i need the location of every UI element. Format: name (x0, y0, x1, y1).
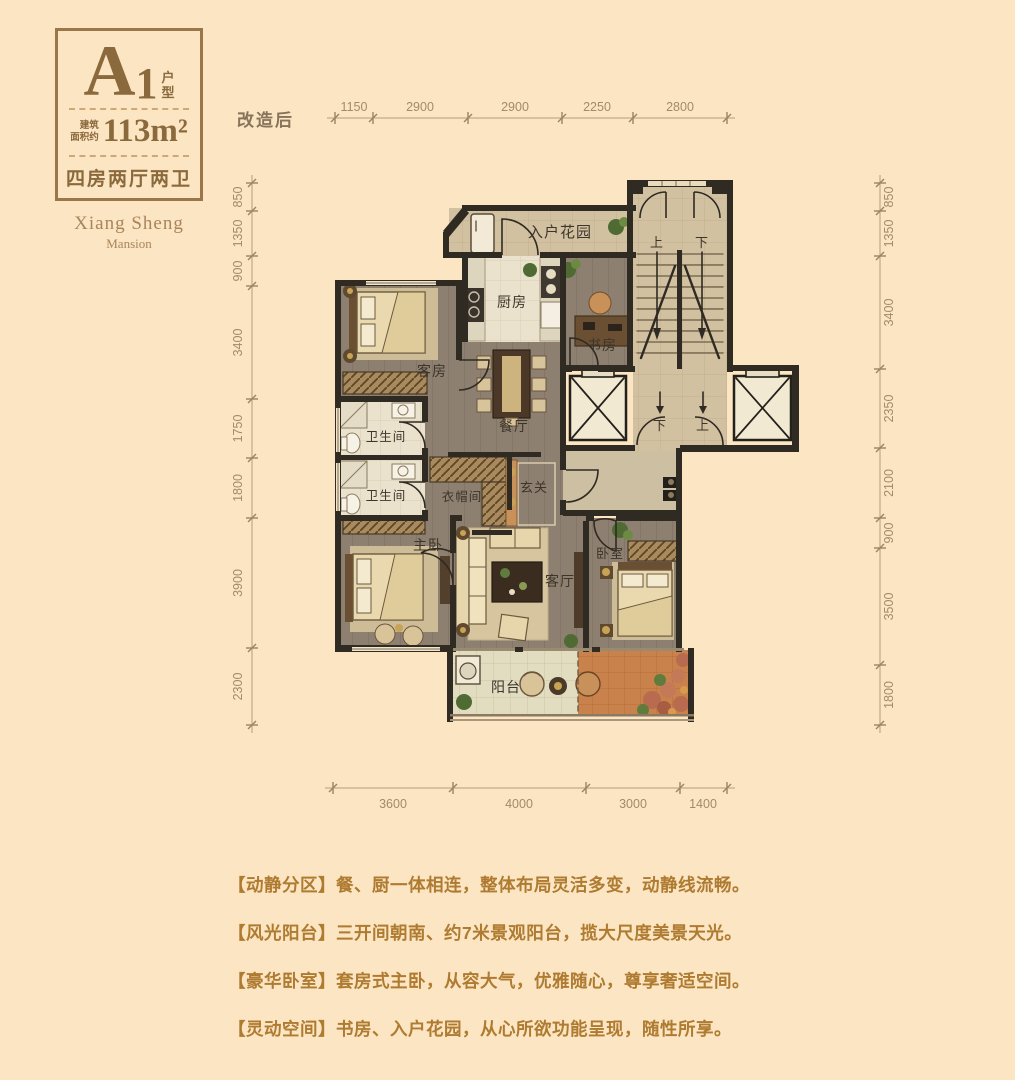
dim-right-6: 3500 (882, 593, 896, 621)
guest-bed-icon (343, 284, 438, 363)
floor-plan-poster: A 1 户 型 建筑 面积约 113m² 四房两厅两卫 Xiang Sheng … (0, 0, 1015, 1080)
dim-left-7: 2300 (231, 673, 245, 701)
dim-top-2: 2900 (501, 100, 529, 114)
room-label-study: 书房 (587, 337, 617, 353)
room-label-living: 客厅 (545, 573, 575, 589)
dim-bottom-3: 1400 (689, 797, 717, 811)
dim-left-2: 900 (231, 261, 245, 282)
dimension-top: 1150 2900 2900 2250 2800 (327, 100, 735, 124)
dim-right-4: 2100 (882, 469, 896, 497)
dim-right-5: 900 (882, 523, 896, 544)
dim-left-0: 850 (231, 187, 245, 208)
plant-icon (523, 263, 537, 277)
room-label-cloak: 衣帽间 (442, 489, 483, 504)
dimension-right: 850 1350 3400 2350 2100 900 3500 1800 (874, 175, 896, 733)
dim-bottom-0: 3600 (379, 797, 407, 811)
dim-left-1: 1350 (231, 220, 245, 248)
dim-left-3: 3400 (231, 329, 245, 357)
dim-top-1: 2900 (406, 100, 434, 114)
dim-right-0: 850 (882, 187, 896, 208)
dim-bottom-1: 4000 (505, 797, 533, 811)
dimension-bottom: 3600 4000 3000 1400 (325, 782, 735, 811)
room-label-bath-upper: 卫生间 (366, 430, 407, 444)
stairs-down-label: 下 (695, 235, 709, 250)
room-label-bath-lower: 卫生间 (366, 489, 407, 503)
feature-line: 【动静分区】餐、厨一体相连，整体布局灵活多变，动静线流畅。 (228, 872, 750, 897)
room-label-entry-garden: 入户花园 (528, 224, 592, 241)
dim-right-3: 2350 (882, 395, 896, 423)
landing-up-label: 上 (696, 418, 710, 433)
room-label-dining: 餐厅 (499, 418, 529, 434)
dim-top-3: 2250 (583, 100, 611, 114)
stairs-up-label: 上 (650, 235, 664, 250)
dim-top-0: 1150 (341, 100, 368, 114)
feature-line: 【灵动空间】书房、入户花园，从心所欲功能呈现，随性所享。 (228, 1016, 750, 1041)
dim-top-4: 2800 (666, 100, 694, 114)
room-label-kitchen: 厨房 (497, 294, 527, 310)
cloak-cabinet-icon (482, 482, 506, 526)
room-label-balcony: 阳台 (491, 679, 521, 695)
dim-left-6: 3900 (231, 569, 245, 597)
wardrobe-icon (343, 372, 427, 394)
plant-icon (564, 634, 578, 648)
feature-line: 【风光阳台】三开间朝南、约7米景观阳台，揽大尺度美景天光。 (228, 920, 750, 945)
room-label-foyer: 玄关 (520, 480, 548, 495)
dim-left-4: 1750 (231, 415, 245, 443)
dim-right-1: 1350 (882, 220, 896, 248)
dim-right-2: 3400 (882, 299, 896, 327)
room-label-master: 主卧 (413, 537, 443, 553)
dimension-left: 850 1350 900 3400 1750 1800 3900 2300 (231, 175, 258, 733)
room-label-bedroom: 卧室 (596, 546, 624, 561)
elevator-icon (734, 369, 791, 440)
cloak-cabinet-icon (430, 457, 506, 482)
room-label-guest: 客房 (417, 363, 447, 379)
dim-right-7: 1800 (882, 681, 896, 709)
dim-bottom-2: 3000 (619, 797, 647, 811)
fridge-icon (471, 214, 494, 253)
landing-down-label: 下 (653, 418, 667, 433)
feature-list: 【动静分区】餐、厨一体相连，整体布局灵活多变，动静线流畅。 【风光阳台】三开间朝… (228, 872, 750, 1064)
elevator-icon (570, 369, 626, 440)
plant-icon (456, 694, 472, 710)
dim-left-5: 1800 (231, 474, 245, 502)
feature-line: 【豪华卧室】套房式主卧，从容大气，优雅随心，尊享奢适空间。 (228, 968, 750, 993)
